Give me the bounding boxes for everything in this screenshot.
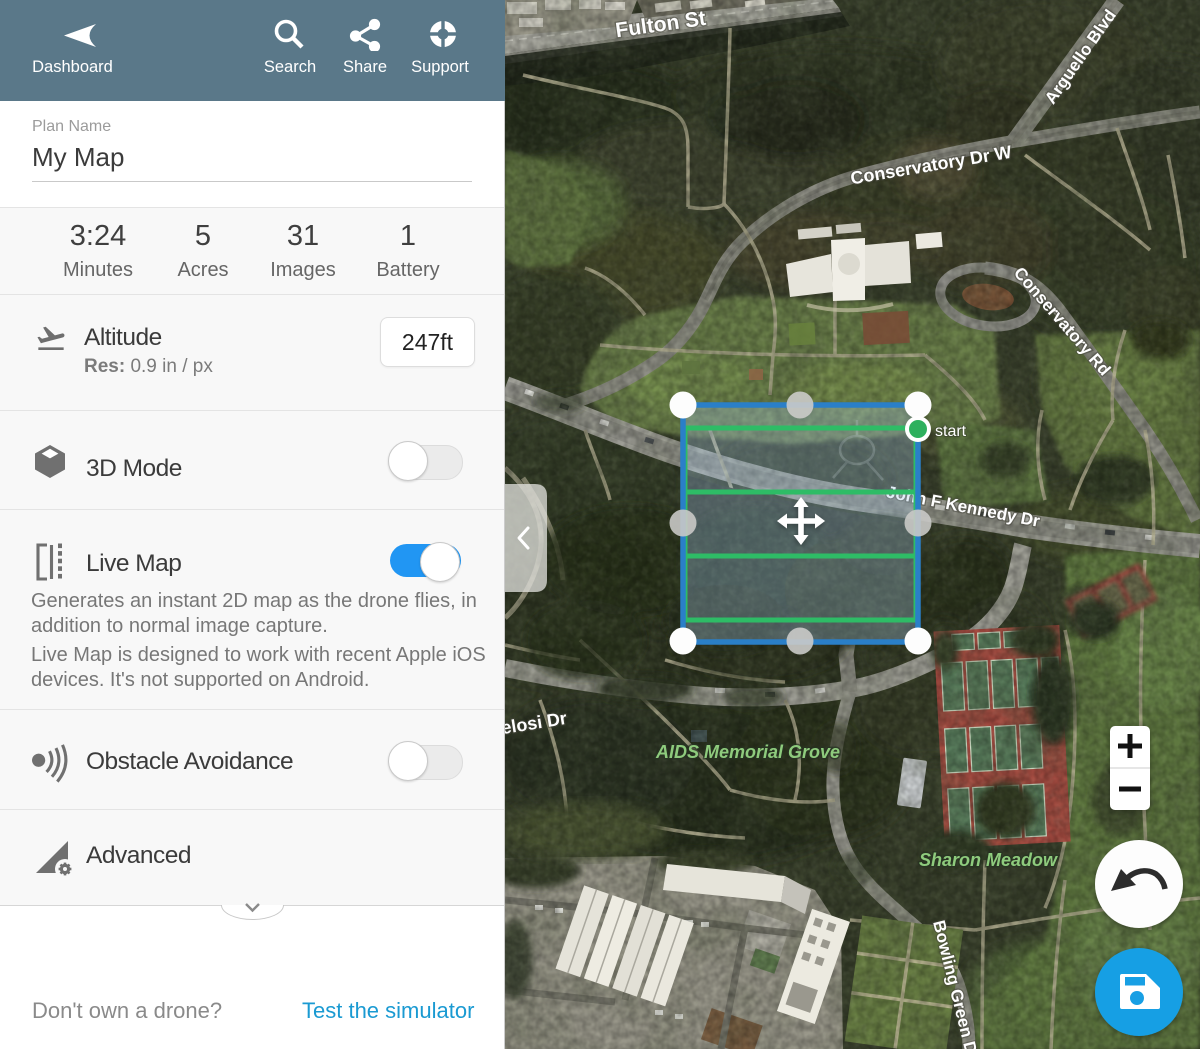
svg-text:AIDS Memorial Grove: AIDS Memorial Grove [655, 742, 840, 762]
svg-text:Sharon Meadow: Sharon Meadow [919, 850, 1058, 870]
svg-text:start: start [935, 423, 967, 440]
